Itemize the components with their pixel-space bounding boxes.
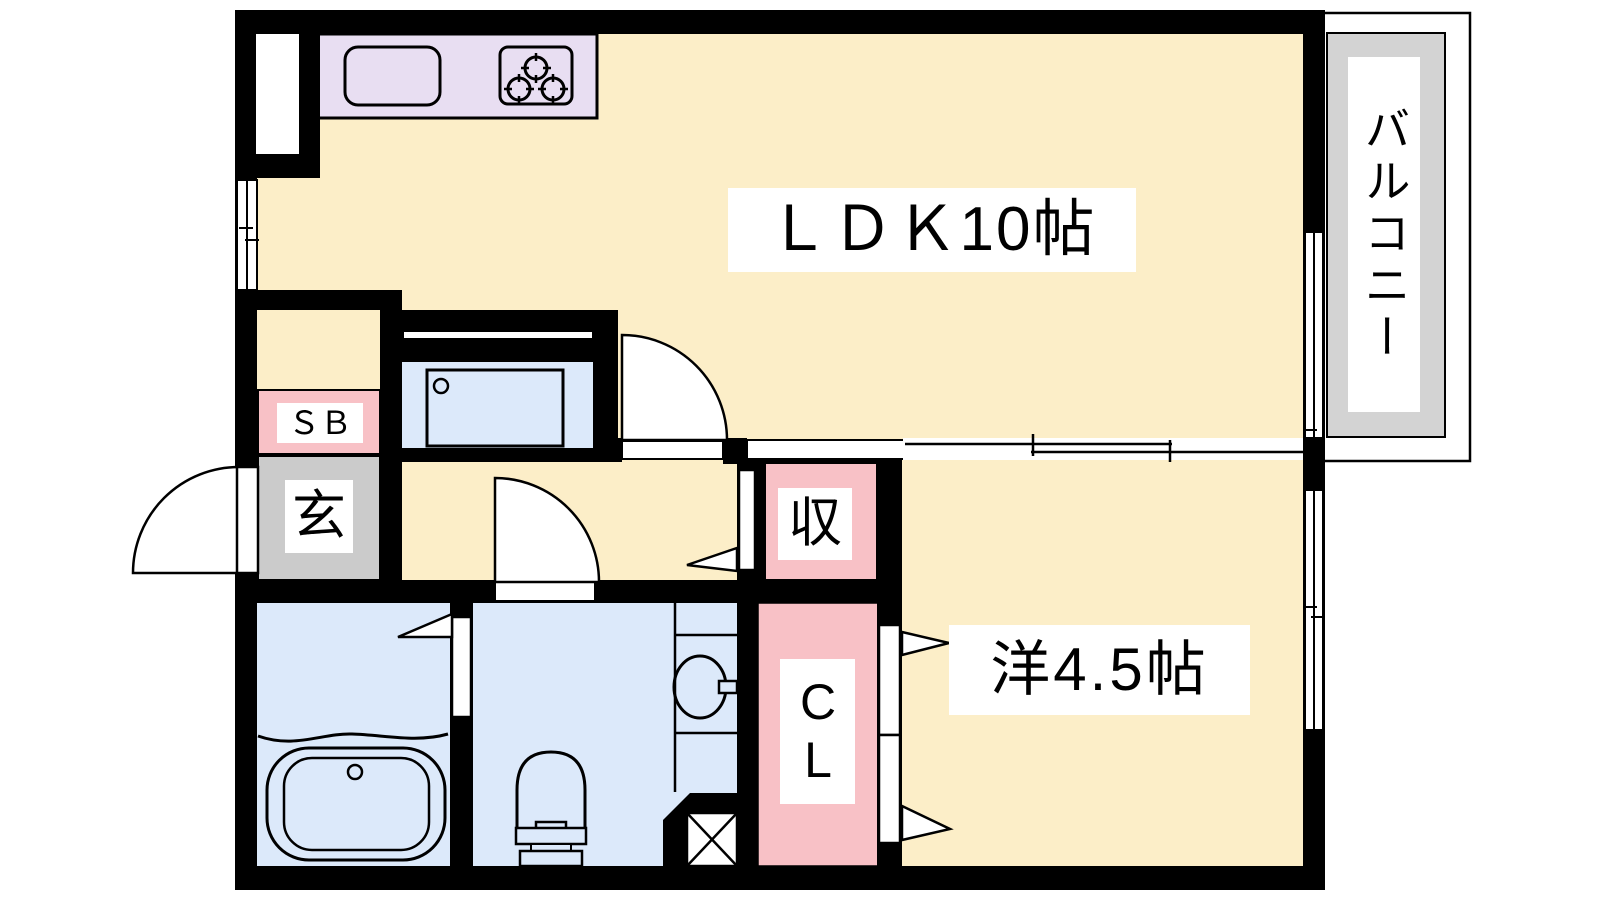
storage-top-opening bbox=[747, 440, 905, 459]
ldk-label: ＬＤＫ10帖 bbox=[728, 188, 1136, 272]
balcony-label: バルコニー bbox=[1348, 57, 1420, 412]
balcony-window bbox=[1303, 232, 1325, 443]
entrance-label: 玄 bbox=[285, 480, 353, 553]
kitchen-counter bbox=[318, 34, 597, 118]
western-room-label: 洋4.5帖 bbox=[949, 625, 1250, 715]
entrance-door bbox=[133, 467, 258, 573]
ldk-left-window bbox=[237, 180, 259, 290]
shoebox-label: ＳＢ bbox=[277, 403, 363, 443]
washroom-hatch bbox=[404, 332, 592, 338]
wall-niche bbox=[255, 33, 300, 155]
storage-label: 収 bbox=[778, 488, 852, 560]
floorplan-canvas: ＬＤＫ10帖 洋4.5帖 バルコニー ＳＢ 玄 収 CL bbox=[0, 0, 1600, 900]
sliding-partition bbox=[903, 434, 1303, 462]
closet-label: CL bbox=[780, 659, 855, 804]
western-room-window bbox=[1303, 490, 1325, 730]
